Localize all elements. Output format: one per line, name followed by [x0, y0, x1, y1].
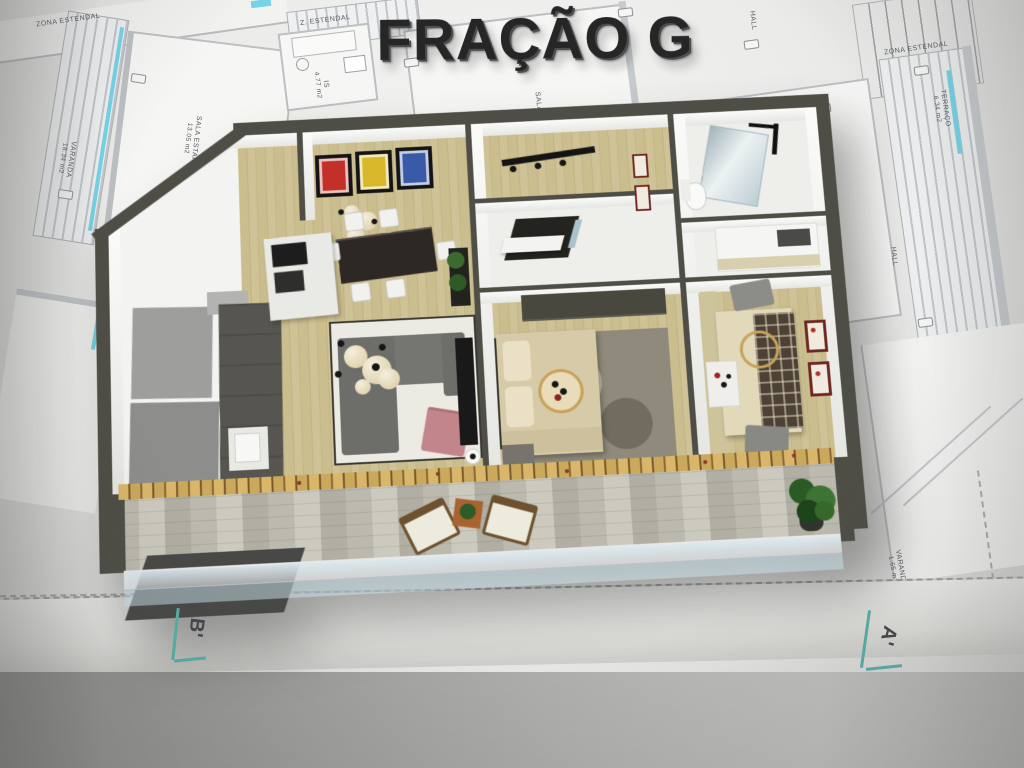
- bedroom-picture: [804, 320, 828, 353]
- marker-line: [860, 610, 871, 668]
- marker-line: [174, 656, 206, 662]
- kitchen-sink-basin: [234, 433, 261, 463]
- dining-chair: [343, 211, 365, 232]
- balcony-wall-left: [113, 500, 126, 574]
- flower-speck: [792, 454, 796, 458]
- poster-red: [315, 154, 353, 198]
- marker-line: [866, 664, 902, 671]
- kitchen-shelving: [131, 307, 213, 400]
- hall-picture: [632, 154, 649, 179]
- floor-gradient: [0, 672, 1024, 768]
- label-hall-right: HALL: [888, 246, 899, 266]
- marker-line: [171, 608, 179, 660]
- marker-letter-b: B': [183, 617, 208, 639]
- toilet-tank: [680, 179, 691, 202]
- fraction-title: FRAÇÃO G: [0, 1, 1024, 79]
- oven: [274, 270, 305, 293]
- bedroom-picture: [808, 361, 833, 396]
- dining-chair: [350, 282, 372, 303]
- section-marker-a: A': [852, 608, 922, 678]
- dining-chair: [385, 278, 407, 299]
- bed-pillow: [502, 340, 532, 381]
- screenshot-stage: ZONA ESTENDAL VARANDA 18.34 m2 SALA ESTA…: [0, 0, 1024, 768]
- bed-pillow: [505, 386, 535, 428]
- cooktop: [271, 242, 308, 268]
- closet-dark-box: [777, 228, 811, 246]
- shower-glass: [698, 125, 768, 207]
- marker-letter-a: A': [874, 623, 901, 648]
- dining-chair: [378, 208, 400, 229]
- poster-yellow: [355, 150, 393, 194]
- apartment-model: [93, 94, 873, 628]
- poster-blue: [395, 146, 433, 190]
- hall-picture: [634, 185, 651, 212]
- section-marker-b: B': [162, 604, 232, 674]
